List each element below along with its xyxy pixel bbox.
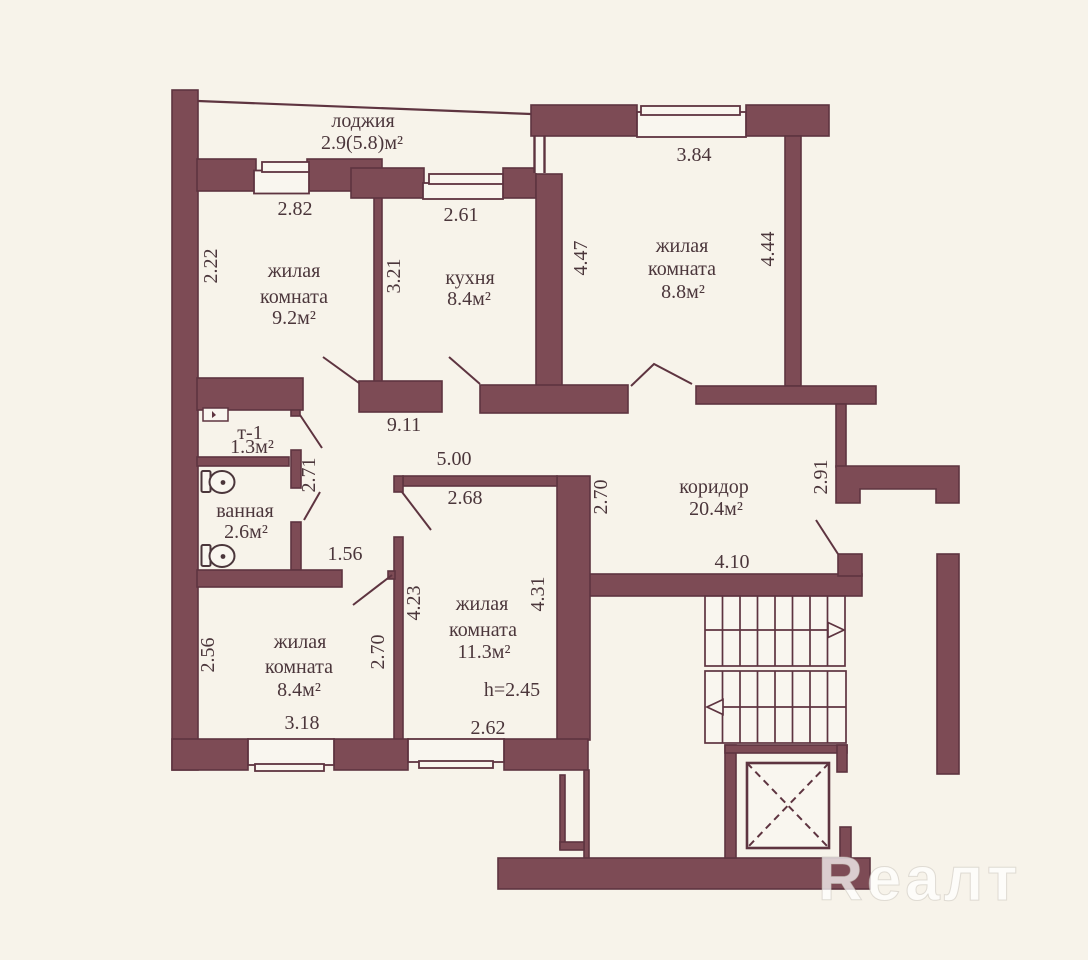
svg-text:3.21: 3.21: [383, 259, 405, 294]
svg-text:5.00: 5.00: [437, 448, 472, 470]
svg-text:4.23: 4.23: [403, 586, 425, 621]
svg-text:жилая: жилая: [455, 593, 509, 615]
svg-text:2.6м²: 2.6м²: [224, 521, 268, 543]
svg-text:ванная: ванная: [216, 500, 274, 522]
svg-text:комната: комната: [265, 656, 333, 678]
svg-text:2.70: 2.70: [590, 480, 612, 515]
svg-text:11.3м²: 11.3м²: [458, 641, 511, 663]
svg-text:2.62: 2.62: [471, 717, 506, 739]
svg-text:жилая: жилая: [273, 631, 327, 653]
svg-text:4.44: 4.44: [757, 232, 779, 267]
svg-text:2.56: 2.56: [197, 638, 219, 673]
svg-text:h=2.45: h=2.45: [484, 679, 540, 701]
svg-text:комната: комната: [260, 286, 328, 308]
svg-text:комната: комната: [449, 619, 517, 641]
svg-text:20.4м²: 20.4м²: [689, 498, 743, 520]
svg-text:8.4м²: 8.4м²: [447, 288, 491, 310]
svg-text:жилая: жилая: [267, 260, 321, 282]
svg-text:3.84: 3.84: [677, 144, 712, 166]
svg-text:2.61: 2.61: [444, 204, 479, 226]
svg-text:9.11: 9.11: [387, 414, 421, 436]
svg-text:8.8м²: 8.8м²: [661, 281, 705, 303]
svg-text:жилая: жилая: [655, 235, 709, 257]
svg-text:3.18: 3.18: [285, 712, 320, 734]
svg-text:9.2м²: 9.2м²: [272, 307, 316, 329]
svg-text:2.71: 2.71: [298, 458, 320, 493]
svg-text:лоджия: лоджия: [331, 110, 394, 132]
svg-text:коридор: коридор: [679, 476, 749, 498]
svg-text:1.3м²: 1.3м²: [230, 436, 274, 458]
svg-text:2.9(5.8)м²: 2.9(5.8)м²: [321, 132, 403, 154]
svg-text:2.82: 2.82: [278, 198, 313, 220]
svg-text:2.91: 2.91: [810, 460, 832, 495]
svg-text:2.68: 2.68: [448, 487, 483, 509]
svg-text:4.31: 4.31: [527, 577, 549, 612]
svg-text:2.22: 2.22: [200, 249, 222, 284]
svg-text:Rеалт: Rеалт: [818, 845, 1022, 914]
svg-text:1.56: 1.56: [328, 543, 363, 565]
svg-text:2.70: 2.70: [367, 635, 389, 670]
svg-text:4.10: 4.10: [715, 551, 750, 573]
svg-text:кухня: кухня: [445, 267, 494, 289]
svg-text:4.47: 4.47: [570, 241, 592, 276]
svg-text:комната: комната: [648, 258, 716, 280]
svg-text:8.4м²: 8.4м²: [277, 679, 321, 701]
